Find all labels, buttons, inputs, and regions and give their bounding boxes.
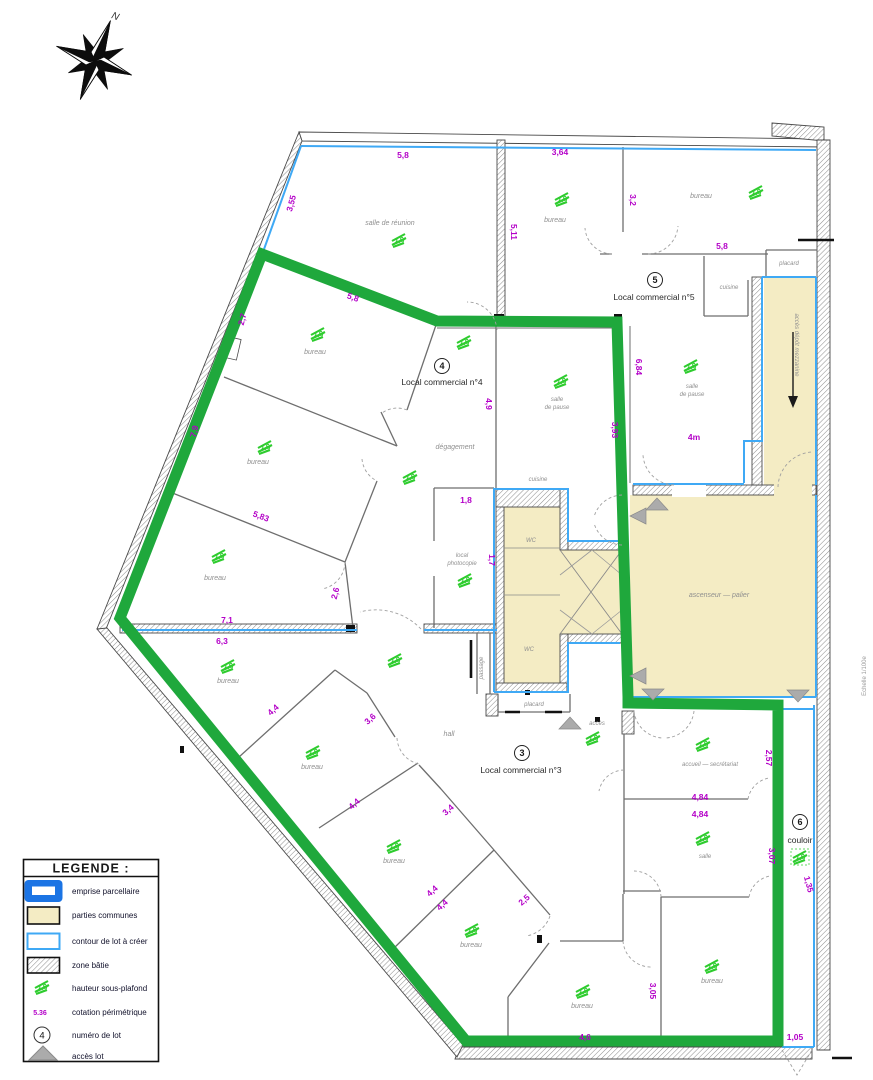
- svg-text:bureau: bureau: [301, 764, 323, 771]
- svg-text:cotation périmétrique: cotation périmétrique: [72, 1008, 147, 1017]
- svg-text:accès dépôt mezzanine: accès dépôt mezzanine: [793, 313, 799, 377]
- svg-text:accès: accès: [589, 721, 605, 727]
- svg-text:salle: salle: [551, 397, 564, 403]
- svg-text:3,05: 3,05: [648, 983, 658, 1000]
- svg-text:1,8: 1,8: [460, 495, 472, 505]
- svg-text:3,64: 3,64: [552, 147, 569, 157]
- svg-text:emprise parcellaire: emprise parcellaire: [72, 887, 140, 896]
- svg-text:Local commercial n°5: Local commercial n°5: [613, 292, 695, 302]
- svg-text:couloir: couloir: [787, 835, 812, 845]
- svg-text:de pause: de pause: [680, 392, 705, 398]
- svg-text:bureau: bureau: [460, 942, 482, 949]
- svg-text:5,8: 5,8: [397, 150, 409, 160]
- svg-text:1,7: 1,7: [487, 554, 497, 566]
- svg-text:WC: WC: [524, 647, 535, 653]
- svg-text:bureau: bureau: [304, 349, 326, 356]
- svg-text:4,84: 4,84: [692, 792, 709, 802]
- svg-text:3,93: 3,93: [610, 422, 620, 439]
- svg-text:local: local: [456, 553, 469, 559]
- svg-text:bureau: bureau: [571, 1003, 593, 1010]
- svg-text:bureau: bureau: [701, 978, 723, 985]
- svg-text:cuisine: cuisine: [529, 477, 548, 483]
- svg-text:1,05: 1,05: [787, 1032, 804, 1042]
- svg-text:placard: placard: [523, 702, 544, 708]
- svg-text:salle de réunion: salle de réunion: [365, 220, 415, 227]
- svg-text:passage: passage: [479, 656, 485, 680]
- svg-text:accueil — secrétariat: accueil — secrétariat: [682, 762, 738, 768]
- svg-text:3: 3: [519, 748, 524, 758]
- svg-text:bureau: bureau: [383, 858, 405, 865]
- svg-text:bureau: bureau: [544, 217, 566, 224]
- svg-text:4: 4: [39, 1031, 44, 1042]
- svg-text:bureau: bureau: [690, 193, 712, 200]
- svg-text:5.36: 5.36: [33, 1010, 47, 1017]
- svg-text:photocopie: photocopie: [446, 561, 477, 567]
- svg-text:6: 6: [797, 817, 802, 827]
- svg-text:bureau: bureau: [217, 678, 239, 685]
- svg-text:4,6: 4,6: [579, 1032, 591, 1042]
- svg-text:Echelle 1/100e: Echelle 1/100e: [862, 655, 868, 695]
- svg-text:LEGENDE :: LEGENDE :: [52, 862, 129, 876]
- svg-text:Local commercial n°3: Local commercial n°3: [480, 765, 562, 775]
- svg-text:7,1: 7,1: [221, 615, 233, 625]
- svg-text:5: 5: [652, 275, 657, 285]
- svg-text:ascenseur — palier: ascenseur — palier: [689, 592, 750, 599]
- svg-text:hall: hall: [444, 731, 455, 738]
- svg-text:cuisine: cuisine: [720, 285, 739, 291]
- svg-text:WC: WC: [526, 538, 537, 544]
- svg-text:4: 4: [439, 361, 444, 371]
- svg-text:bureau: bureau: [204, 575, 226, 582]
- svg-text:zone bâtie: zone bâtie: [72, 961, 109, 970]
- svg-text:3,07: 3,07: [767, 848, 777, 865]
- svg-text:salle: salle: [699, 854, 712, 860]
- svg-text:5,11: 5,11: [509, 224, 519, 240]
- svg-text:placard: placard: [778, 261, 799, 267]
- svg-text:5,8: 5,8: [716, 241, 728, 251]
- svg-text:Local commercial n°4: Local commercial n°4: [401, 377, 483, 387]
- svg-text:de pause: de pause: [545, 405, 570, 411]
- svg-text:salle: salle: [686, 384, 699, 390]
- svg-text:3,2: 3,2: [628, 194, 638, 206]
- svg-text:parties communes: parties communes: [72, 911, 137, 920]
- svg-text:contour de lot à créer: contour de lot à créer: [72, 937, 148, 946]
- svg-text:4m: 4m: [688, 432, 701, 442]
- svg-text:2,57: 2,57: [764, 750, 774, 767]
- svg-text:numéro de lot: numéro de lot: [72, 1031, 122, 1040]
- svg-text:4,84: 4,84: [692, 809, 709, 819]
- svg-text:bureau: bureau: [247, 459, 269, 466]
- svg-text:6,84: 6,84: [634, 359, 644, 376]
- svg-text:4,9: 4,9: [484, 398, 494, 410]
- svg-text:accès lot: accès lot: [72, 1052, 104, 1061]
- svg-text:dégagement: dégagement: [436, 444, 476, 451]
- svg-text:6,3: 6,3: [216, 636, 228, 646]
- svg-text:hauteur sous-plafond: hauteur sous-plafond: [72, 984, 147, 993]
